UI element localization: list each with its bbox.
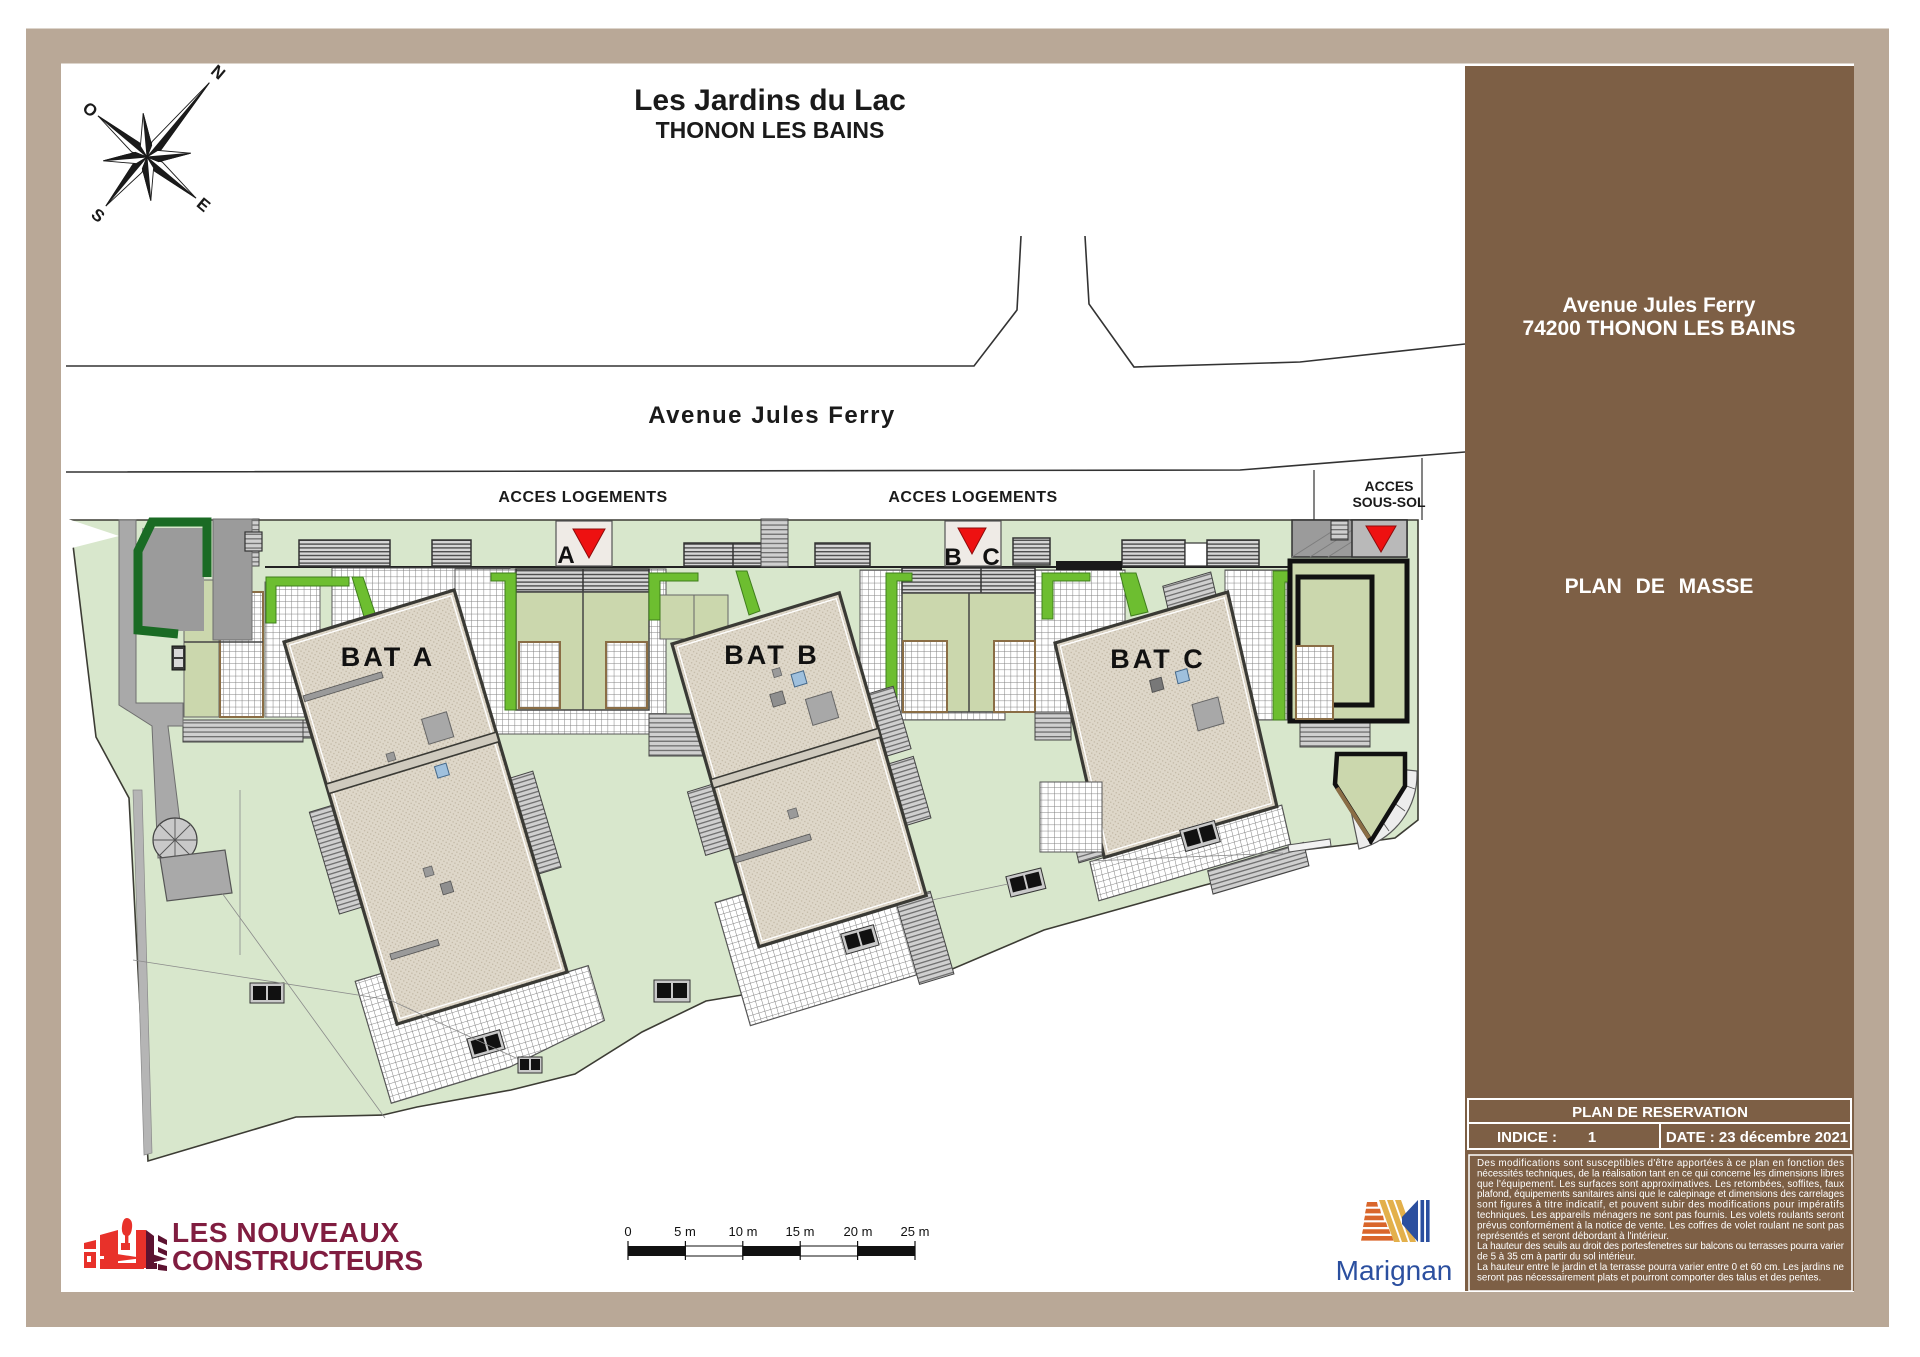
svg-text:C: C xyxy=(982,544,999,571)
svg-text:PLAN DE RESERVATION: PLAN DE RESERVATION xyxy=(1572,1104,1748,1121)
svg-text:A: A xyxy=(557,542,574,569)
svg-text:ACCES: ACCES xyxy=(1364,478,1413,494)
svg-text:ACCES LOGEMENTS: ACCES LOGEMENTS xyxy=(888,489,1057,506)
svg-text:BAT A: BAT A xyxy=(341,642,435,672)
svg-text:PLAN DE MASSE: PLAN DE MASSE xyxy=(1565,575,1754,598)
svg-text:DATE : 23 décembre 2021: DATE : 23 décembre 2021 xyxy=(1666,1129,1848,1146)
svg-text:BAT C: BAT C xyxy=(1110,644,1206,674)
svg-text:Avenue Jules Ferry: Avenue Jules Ferry xyxy=(1563,294,1756,317)
svg-text:La hauteur des seuils au droit: La hauteur des seuils au droit des porte… xyxy=(1477,1241,1845,1252)
svg-text:74200 THONON LES BAINS: 74200 THONON LES BAINS xyxy=(1522,317,1795,340)
svg-text:15 m: 15 m xyxy=(786,1224,815,1239)
svg-text:nécessités techniques, de la r: nécessités techniques, de la réalisation… xyxy=(1477,1168,1844,1179)
svg-text:sont figures à titre indicatif: sont figures à titre indicatif, et pouve… xyxy=(1477,1200,1844,1211)
svg-text:25 m: 25 m xyxy=(901,1224,930,1239)
svg-text:5 m: 5 m xyxy=(674,1224,696,1239)
svg-text:CONSTRUCTEURS: CONSTRUCTEURS xyxy=(172,1245,423,1276)
svg-text:plafond, équipements sanitaire: plafond, équipements sanitaires ainsi qu… xyxy=(1477,1189,1844,1200)
svg-text:SOUS-SOL: SOUS-SOL xyxy=(1352,494,1426,510)
svg-text:INDICE :: INDICE : xyxy=(1497,1129,1557,1146)
svg-text:Marignan: Marignan xyxy=(1336,1255,1453,1286)
svg-text:BAT B: BAT B xyxy=(724,640,820,670)
svg-text:ACCES LOGEMENTS: ACCES LOGEMENTS xyxy=(498,489,667,506)
svg-text:LES NOUVEAUX: LES NOUVEAUX xyxy=(172,1217,399,1248)
svg-text:THONON LES BAINS: THONON LES BAINS xyxy=(656,117,885,143)
svg-text:que l'équipement. Les surfaces: que l'équipement. Les surfaces sont appr… xyxy=(1477,1179,1844,1190)
svg-text:La hauteur entre le jardin et: La hauteur entre le jardin et la terrass… xyxy=(1477,1262,1845,1273)
svg-text:de 5 à 35 cm à partir du sol i: de 5 à 35 cm à partir du sol intérieur. xyxy=(1477,1252,1636,1263)
svg-text:Des modifications sont suscept: Des modifications sont susceptibles d'êt… xyxy=(1477,1158,1844,1169)
svg-text:20 m: 20 m xyxy=(844,1224,873,1239)
svg-text:10 m: 10 m xyxy=(729,1224,758,1239)
svg-text:B: B xyxy=(944,544,961,571)
svg-text:prévus conformément à la notic: prévus conformément à la notice de vente… xyxy=(1477,1220,1844,1231)
svg-text:représentés et seront débordan: représentés et seront débordant à l'inté… xyxy=(1477,1231,1669,1242)
svg-text:1: 1 xyxy=(1588,1129,1596,1146)
svg-text:0: 0 xyxy=(624,1224,631,1239)
svg-text:Avenue Jules Ferry: Avenue Jules Ferry xyxy=(648,402,896,429)
svg-text:Les Jardins du Lac: Les Jardins du Lac xyxy=(634,84,906,117)
svg-text:seront pas nécessairement plat: seront pas nécessairement plats et pourr… xyxy=(1477,1272,1821,1283)
svg-text:techniques. Les appareils ména: techniques. Les appareils ménagers ne so… xyxy=(1477,1210,1844,1221)
